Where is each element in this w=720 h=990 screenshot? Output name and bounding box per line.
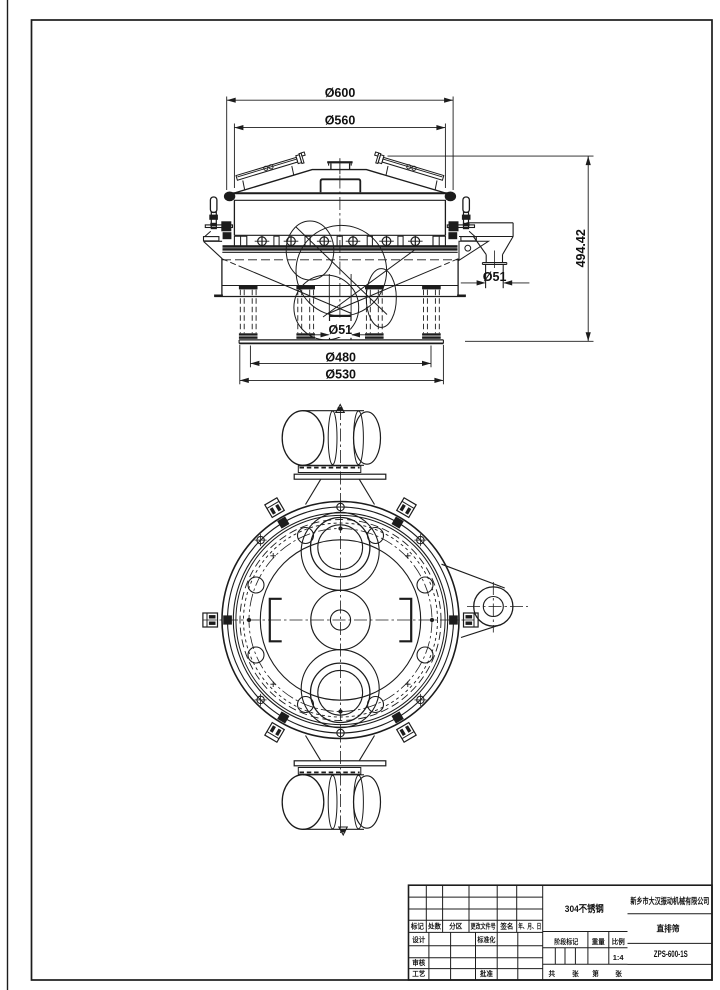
svg-text:ZPS-600-1S: ZPS-600-1S — [654, 949, 688, 960]
svg-text:标准化: 标准化 — [476, 935, 495, 944]
svg-text:工艺: 工艺 — [412, 969, 425, 978]
svg-text:更改文件号: 更改文件号 — [471, 922, 496, 931]
svg-text:设计: 设计 — [412, 935, 425, 944]
svg-text:年、月、日: 年、月、日 — [518, 922, 541, 931]
svg-text:新乡市大汉振动机械有限公司: 新乡市大汉振动机械有限公司 — [630, 895, 709, 906]
svg-text:494.42: 494.42 — [574, 229, 588, 267]
svg-text:张: 张 — [572, 969, 579, 978]
svg-text:分区: 分区 — [449, 922, 462, 931]
svg-text:标记: 标记 — [410, 922, 424, 931]
svg-text:重量: 重量 — [592, 937, 605, 946]
svg-text:Ø480: Ø480 — [325, 351, 356, 365]
svg-text:1:4: 1:4 — [613, 953, 625, 962]
svg-text:Ø51: Ø51 — [483, 270, 507, 284]
svg-text:处数: 处数 — [427, 922, 441, 931]
svg-text:第: 第 — [592, 969, 599, 978]
svg-text:直排筛: 直排筛 — [657, 923, 680, 934]
svg-text:阶段标记: 阶段标记 — [554, 937, 578, 946]
svg-text:Ø600: Ø600 — [325, 86, 356, 100]
svg-text:304不锈钢: 304不锈钢 — [565, 903, 604, 915]
svg-text:张: 张 — [615, 969, 622, 978]
svg-text:签名: 签名 — [499, 922, 513, 931]
svg-text:共: 共 — [549, 969, 556, 978]
svg-text:批准: 批准 — [480, 969, 493, 978]
svg-text:Ø560: Ø560 — [325, 113, 356, 127]
svg-text:审核: 审核 — [412, 958, 425, 967]
svg-text:Ø530: Ø530 — [325, 368, 356, 382]
svg-text:比例: 比例 — [612, 937, 625, 946]
svg-text:Ø51: Ø51 — [328, 323, 352, 337]
